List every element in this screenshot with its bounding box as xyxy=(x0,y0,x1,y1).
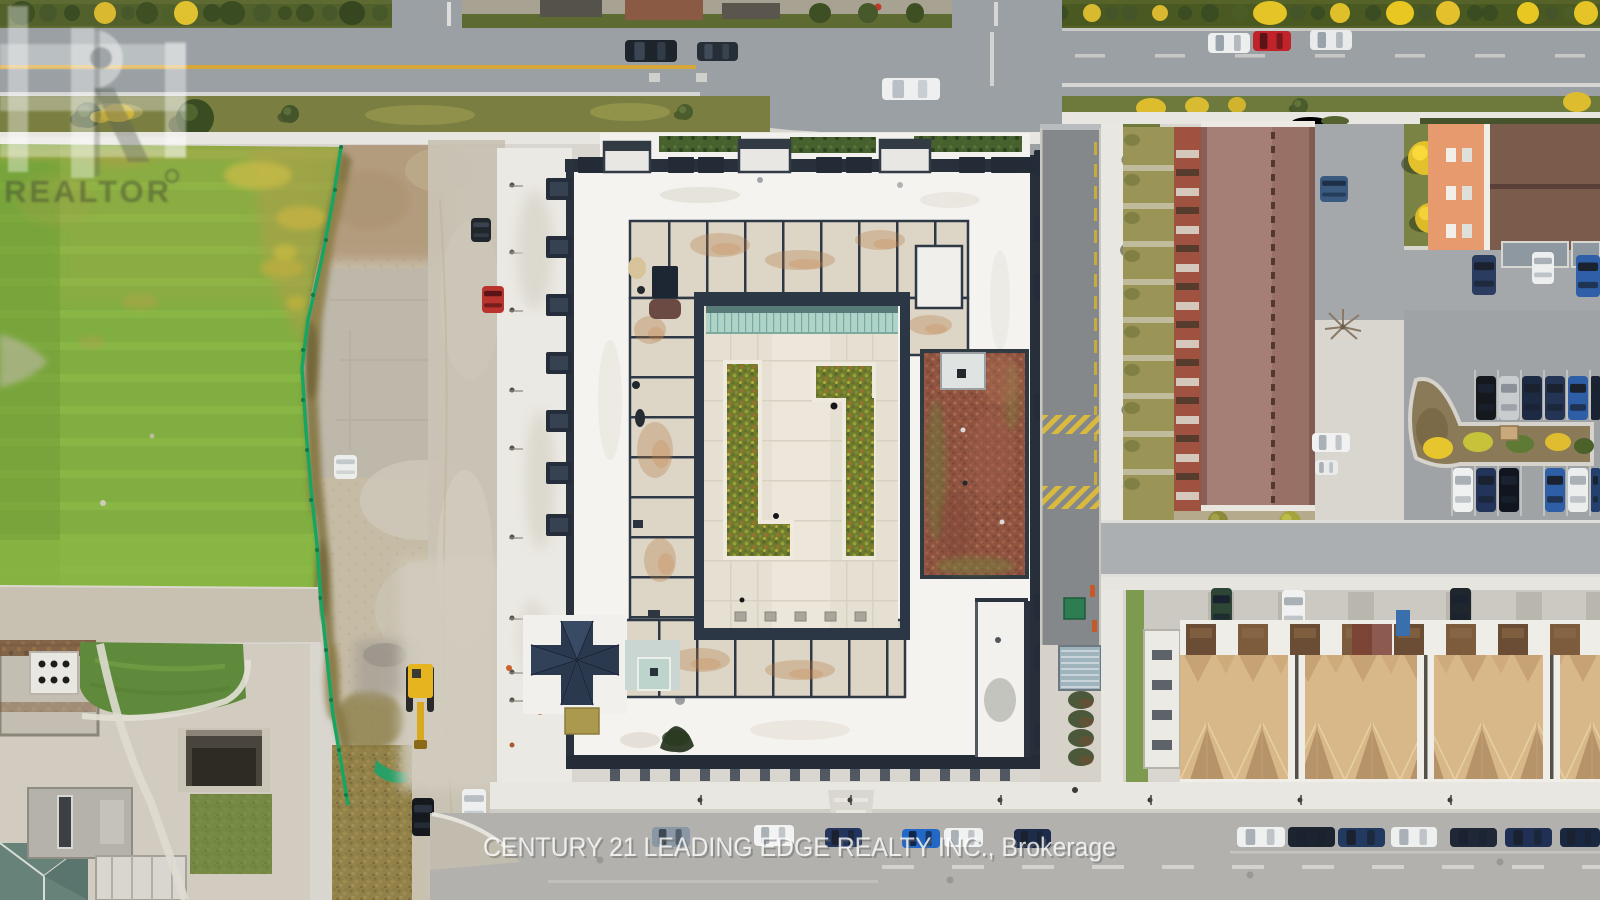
svg-text:CENTURY 21 LEADING EDGE REALTY: CENTURY 21 LEADING EDGE REALTY INC., Bro… xyxy=(483,832,1116,862)
svg-text:REALTOR: REALTOR xyxy=(4,174,172,209)
